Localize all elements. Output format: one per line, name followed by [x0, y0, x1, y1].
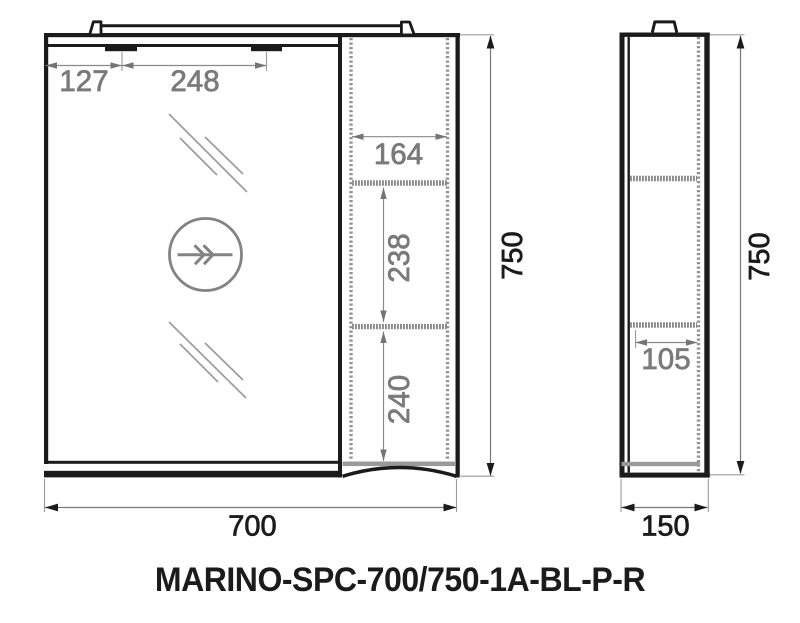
svg-text:248: 248 — [170, 65, 219, 98]
svg-text:MARINO-SPC-700/750-1A-BL-P-R: MARINO-SPC-700/750-1A-BL-P-R — [155, 560, 646, 598]
svg-text:164: 164 — [374, 138, 423, 171]
svg-text:127: 127 — [59, 65, 108, 98]
svg-text:150: 150 — [641, 511, 689, 543]
svg-text:238: 238 — [383, 233, 416, 282]
svg-text:105: 105 — [641, 343, 690, 376]
svg-text:700: 700 — [228, 511, 276, 543]
svg-text:750: 750 — [497, 231, 529, 279]
svg-text:240: 240 — [383, 375, 416, 424]
svg-text:750: 750 — [744, 232, 776, 280]
